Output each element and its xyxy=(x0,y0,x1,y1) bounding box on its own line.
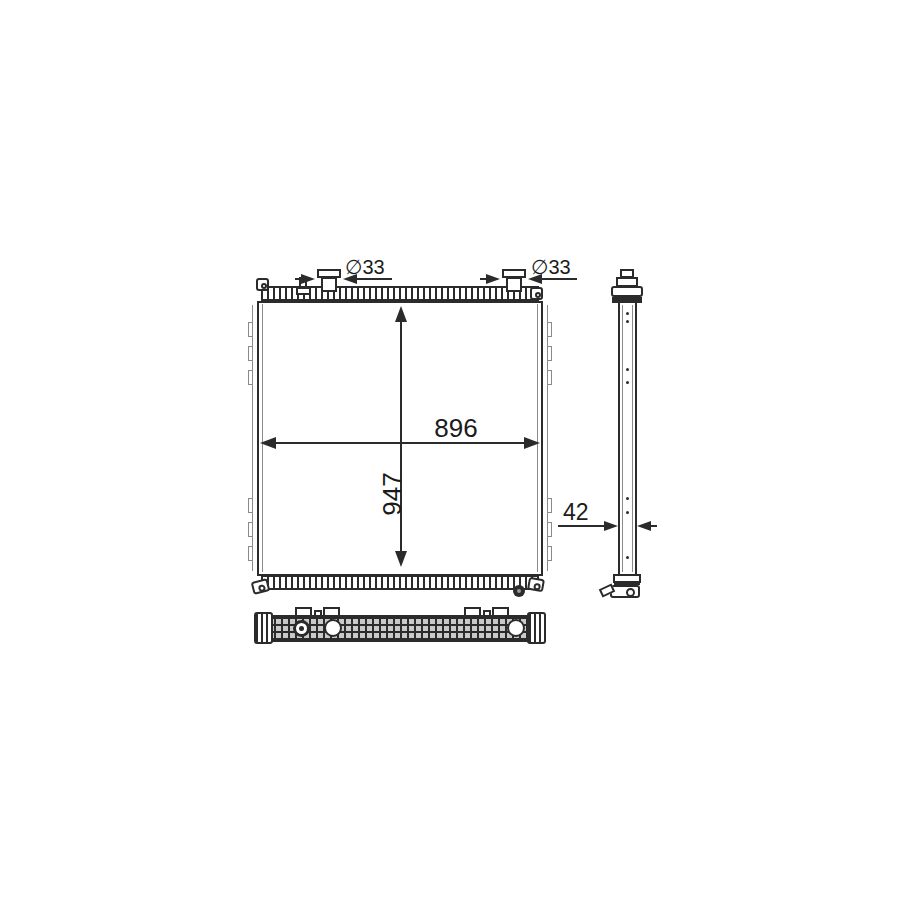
mount-hole-filled xyxy=(293,620,310,637)
right-end-cap xyxy=(527,612,546,644)
left-end-cap xyxy=(254,612,273,644)
mount-hole-open xyxy=(507,619,525,637)
radiator-bottom-view xyxy=(0,0,900,900)
mount-hole-center xyxy=(299,626,304,631)
radiator-technical-drawing: 947 896 ∅33 ∅33 xyxy=(0,0,900,900)
mount-hole-open xyxy=(324,619,342,637)
